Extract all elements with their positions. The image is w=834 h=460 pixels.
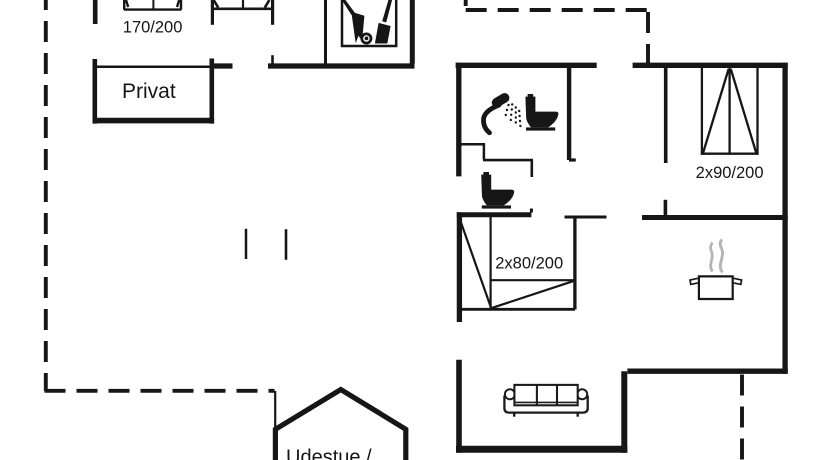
svg-text:170/200: 170/200: [123, 18, 183, 36]
svg-text:Privat: Privat: [122, 80, 176, 103]
svg-text:2x90/200: 2x90/200: [696, 164, 764, 182]
svg-text:Udestue /: Udestue /: [286, 446, 372, 460]
svg-text:2x80/200: 2x80/200: [495, 254, 563, 272]
